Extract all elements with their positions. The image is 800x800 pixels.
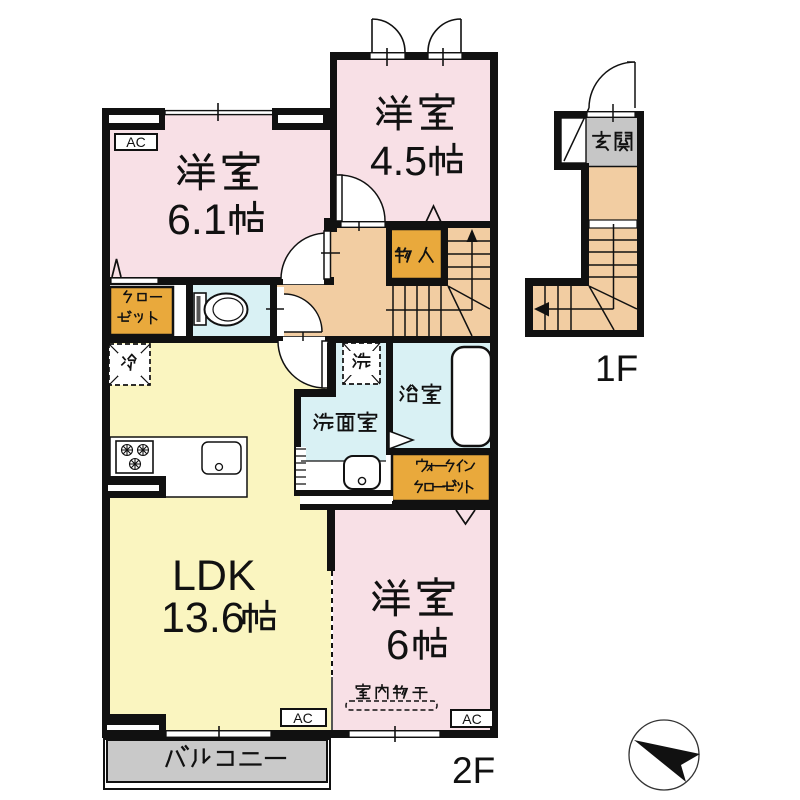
svg-text:AC: AC — [462, 711, 481, 727]
svg-text:LDK: LDK — [172, 552, 256, 600]
svg-text:1F: 1F — [595, 348, 638, 389]
svg-text:AC: AC — [293, 710, 312, 726]
svg-text:6: 6 — [386, 621, 409, 668]
svg-text:2F: 2F — [452, 750, 495, 791]
svg-text:4.5: 4.5 — [370, 138, 427, 184]
svg-text:6.1: 6.1 — [167, 196, 227, 244]
svg-text:AC: AC — [126, 134, 145, 150]
svg-text:13.6: 13.6 — [161, 594, 245, 642]
